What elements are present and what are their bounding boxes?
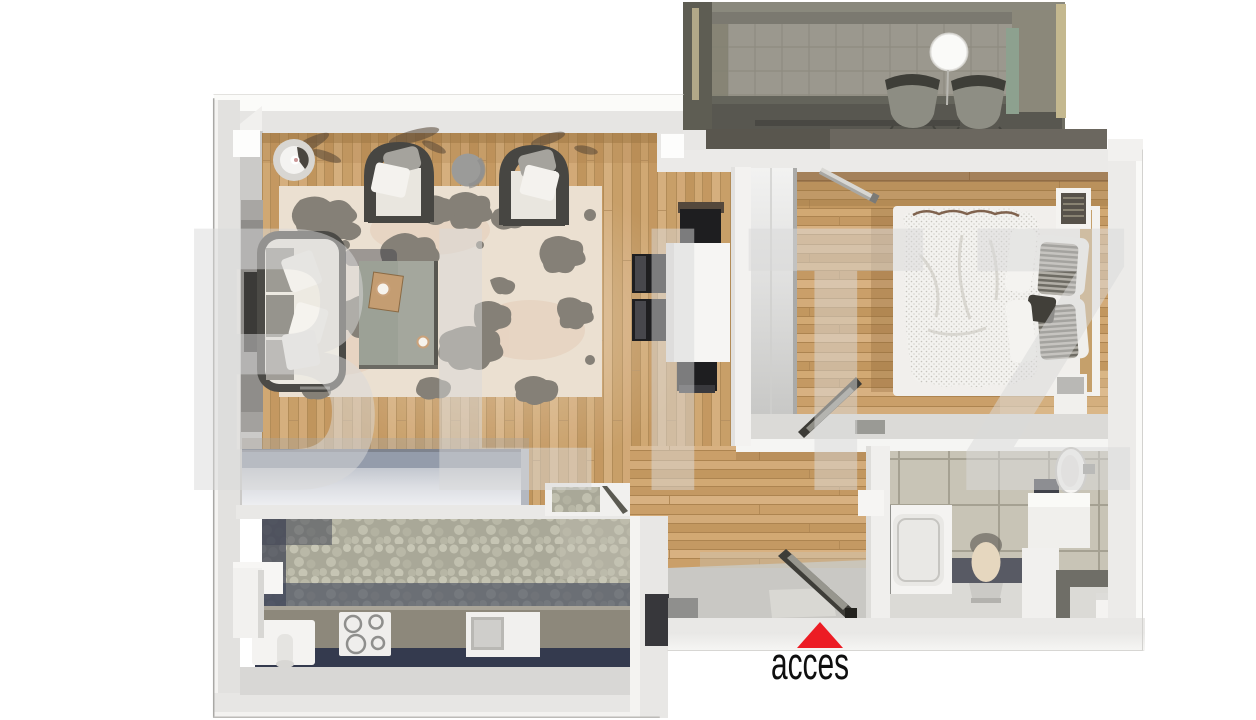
svg-text:BLITZ: BLITZ: [174, 148, 1170, 572]
svg-text:acces: acces: [771, 638, 849, 689]
